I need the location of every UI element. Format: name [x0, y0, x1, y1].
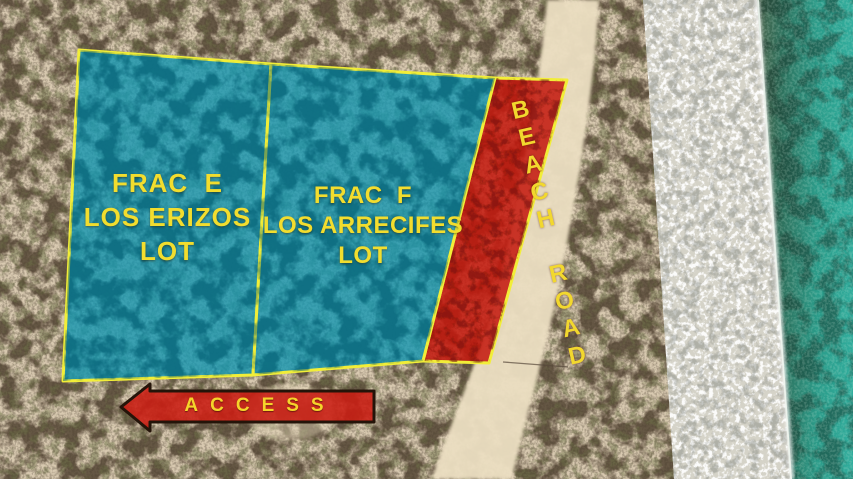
- aerial-base-image: [0, 0, 853, 479]
- aerial-lot-map: FRAC E LOS ERIZOS LOT FRAC F LOS ARRECIF…: [0, 0, 853, 479]
